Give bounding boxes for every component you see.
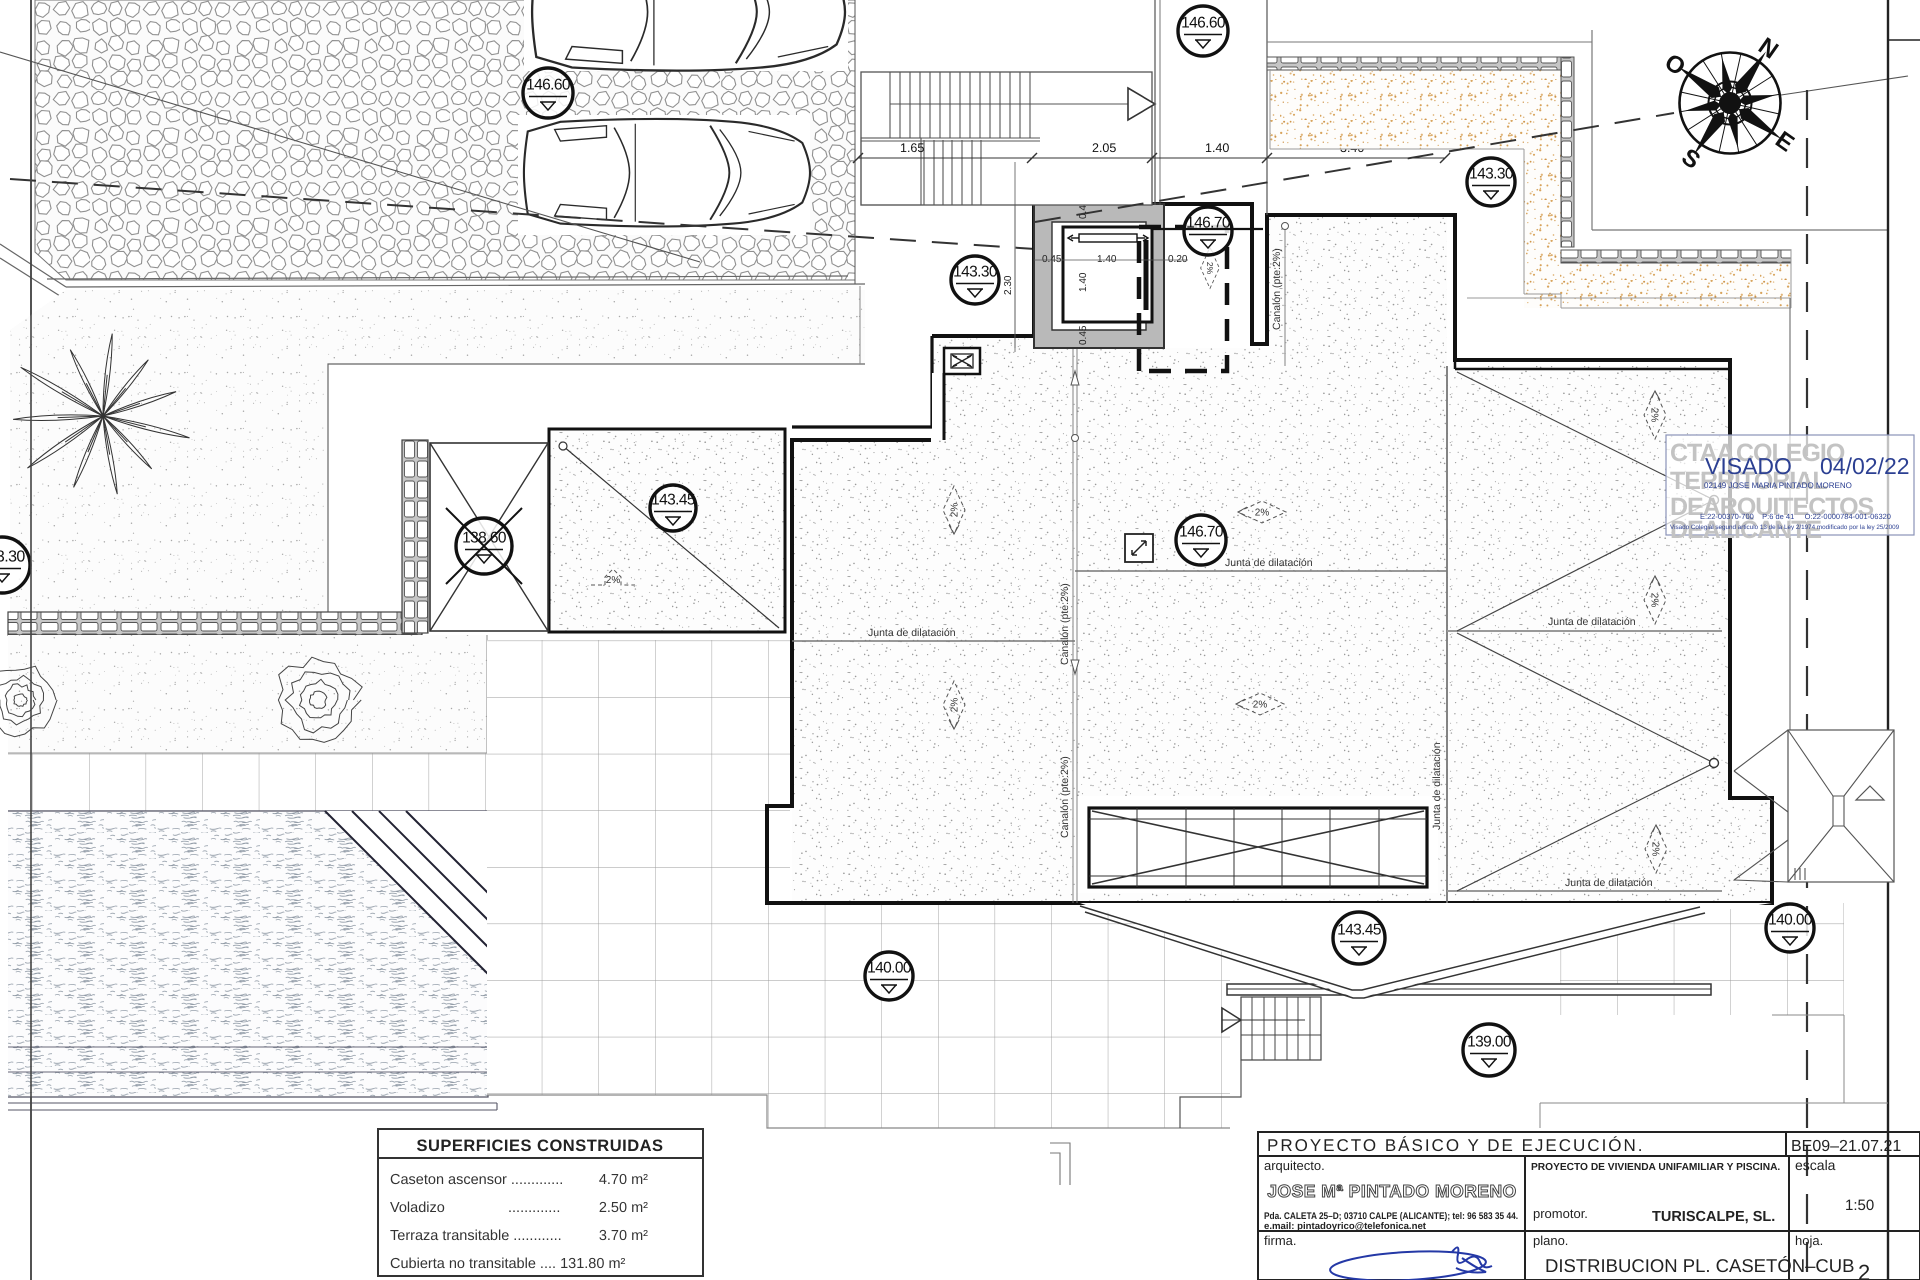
svg-text:2%: 2% <box>1204 262 1213 274</box>
svg-text:2.05: 2.05 <box>1092 141 1116 155</box>
svg-text:Canalón (pte:2%): Canalón (pte:2%) <box>1059 583 1071 665</box>
svg-text:143.30: 143.30 <box>953 264 998 281</box>
svg-text:2%: 2% <box>1650 842 1661 857</box>
svg-text:Voladizo: Voladizo <box>390 1200 445 1216</box>
svg-text:Terraza transitable .........: Terraza transitable ............ <box>390 1228 562 1244</box>
svg-text:DISTRIBUCION PL. CASETÓN–CUB: DISTRIBUCION PL. CASETÓN–CUB <box>1545 1255 1854 1276</box>
svg-text:Caseton ascensor .............: Caseton ascensor ............. <box>390 1172 563 1188</box>
svg-text:140.00: 140.00 <box>867 960 912 977</box>
svg-text:2.30: 2.30 <box>1003 275 1014 295</box>
svg-text:VISADO: VISADO <box>1705 453 1792 479</box>
svg-text:firma.: firma. <box>1264 1233 1297 1248</box>
svg-text:2%: 2% <box>950 503 961 518</box>
svg-text:143.45: 143.45 <box>651 492 695 509</box>
svg-text:1.40: 1.40 <box>1097 254 1117 265</box>
svg-text:3.70 m²: 3.70 m² <box>599 1228 648 1244</box>
svg-text:1.40: 1.40 <box>1205 141 1229 155</box>
svg-text:2%: 2% <box>1255 508 1270 519</box>
svg-text:143.45: 143.45 <box>1337 922 1381 939</box>
svg-text:146.60: 146.60 <box>1181 15 1226 32</box>
svg-text:JOSE Mª PINTADO MORENO: JOSE Mª PINTADO MORENO <box>1267 1181 1517 1201</box>
svg-text:Visado Colegial segund articul: Visado Colegial segund articulo 13 de la… <box>1670 524 1900 531</box>
svg-text:.............: ............. <box>508 1200 560 1216</box>
svg-text:139.00: 139.00 <box>1467 1034 1512 1051</box>
svg-text:2%: 2% <box>1649 593 1660 608</box>
svg-text:SUPERFICIES CONSTRUIDAS: SUPERFICIES CONSTRUIDAS <box>416 1137 663 1155</box>
svg-text:143.30: 143.30 <box>1469 166 1514 183</box>
svg-text:arquitecto.: arquitecto. <box>1264 1158 1325 1173</box>
svg-text:0.45: 0.45 <box>1078 325 1089 345</box>
svg-text:TURISCALPE, SL.: TURISCALPE, SL. <box>1652 1209 1775 1225</box>
svg-text:Junta de dilatación: Junta de dilatación <box>1431 742 1443 830</box>
svg-text:BE09–21.07.21: BE09–21.07.21 <box>1791 1138 1901 1155</box>
svg-text:2.50 m²: 2.50 m² <box>599 1200 648 1216</box>
svg-text:PROYECTO DE VIVIENDA UNIFAMILI: PROYECTO DE VIVIENDA UNIFAMILIAR Y PISCI… <box>1531 1162 1780 1173</box>
svg-text:plano.: plano. <box>1533 1233 1568 1248</box>
svg-text:2%: 2% <box>606 575 621 586</box>
svg-text:1:50: 1:50 <box>1845 1197 1874 1214</box>
svg-text:2%: 2% <box>1253 700 1268 711</box>
svg-text:4.70 m²: 4.70 m² <box>599 1172 648 1188</box>
svg-text:promotor.: promotor. <box>1533 1206 1588 1221</box>
svg-text:146.60: 146.60 <box>526 77 571 94</box>
svg-text:E:22-00370-700 P:6 de 41: E:22-00370-700 P:6 de 41 O:22-0000784-00… <box>1700 512 1891 521</box>
svg-text:2%: 2% <box>950 698 961 713</box>
svg-text:Canalón (pte:2%): Canalón (pte:2%) <box>1059 756 1071 838</box>
svg-text:140.00: 140.00 <box>1768 912 1813 929</box>
svg-text:143.30: 143.30 <box>0 549 25 566</box>
svg-text:2%: 2% <box>1649 408 1660 423</box>
svg-text:Junta de dilatación: Junta de dilatación <box>1225 557 1313 569</box>
svg-text:Junta de dilatación: Junta de dilatación <box>1548 616 1636 628</box>
svg-text:2: 2 <box>1858 1260 1870 1280</box>
svg-text:Junta de dilatación: Junta de dilatación <box>868 627 956 639</box>
svg-text:PROYECTO BÁSICO Y DE EJECU: PROYECTO BÁSICO Y DE EJECUCIÓN. <box>1267 1136 1645 1155</box>
svg-text:0.20: 0.20 <box>1168 254 1188 265</box>
svg-text:1.40: 1.40 <box>1078 272 1089 292</box>
svg-text:1.65: 1.65 <box>900 141 924 155</box>
svg-text:Cubierta no transitable .... 1: Cubierta no transitable .... 131.80 m² <box>390 1256 626 1272</box>
svg-text:146.70: 146.70 <box>1179 524 1224 541</box>
svg-text:Canalón (pte:2%): Canalón (pte:2%) <box>1271 248 1283 330</box>
svg-text:escala: escala <box>1795 1157 1836 1173</box>
svg-text:Junta de dilatación: Junta de dilatación <box>1565 877 1653 889</box>
svg-text:04/02/22: 04/02/22 <box>1820 453 1910 479</box>
svg-text:0.45: 0.45 <box>1042 254 1062 265</box>
svg-text:hoja.: hoja. <box>1795 1233 1823 1248</box>
svg-text:e.mail: pintadoyrico@telefonic: e.mail: pintadoyrico@telefonica.net <box>1264 1221 1427 1232</box>
svg-text:02149 JOSE MARIA PINTADO MOREN: 02149 JOSE MARIA PINTADO MORENO <box>1704 481 1852 490</box>
